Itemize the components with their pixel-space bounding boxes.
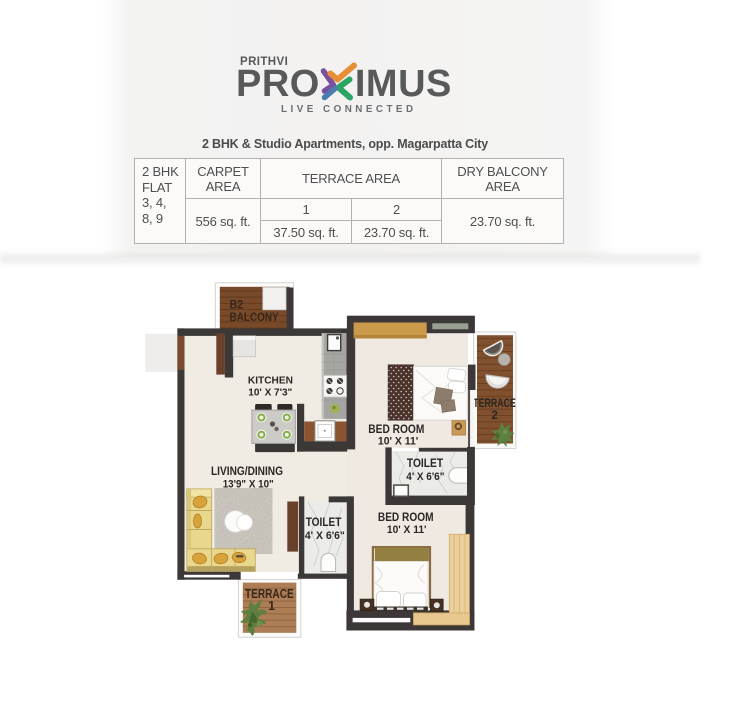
svg-text:KITCHEN: KITCHEN bbox=[248, 375, 293, 386]
svg-text:BED ROOM: BED ROOM bbox=[378, 510, 434, 524]
svg-text:4' X 6'6": 4' X 6'6" bbox=[406, 471, 444, 483]
svg-text:1: 1 bbox=[268, 599, 275, 613]
svg-text:10' X 11': 10' X 11' bbox=[378, 435, 419, 447]
svg-text:BALCONY: BALCONY bbox=[230, 312, 279, 324]
svg-text:2: 2 bbox=[491, 408, 498, 422]
svg-text:LIVING/DINING: LIVING/DINING bbox=[211, 464, 283, 478]
svg-text:TOILET: TOILET bbox=[306, 517, 342, 529]
svg-text:10' X 7'3": 10' X 7'3" bbox=[248, 387, 292, 399]
svg-text:10' X 11': 10' X 11' bbox=[387, 524, 427, 536]
svg-text:4' X 6'6": 4' X 6'6" bbox=[305, 530, 345, 542]
svg-text:B2: B2 bbox=[230, 300, 244, 312]
svg-text:BED ROOM: BED ROOM bbox=[368, 422, 424, 436]
svg-text:TOILET: TOILET bbox=[407, 458, 443, 470]
